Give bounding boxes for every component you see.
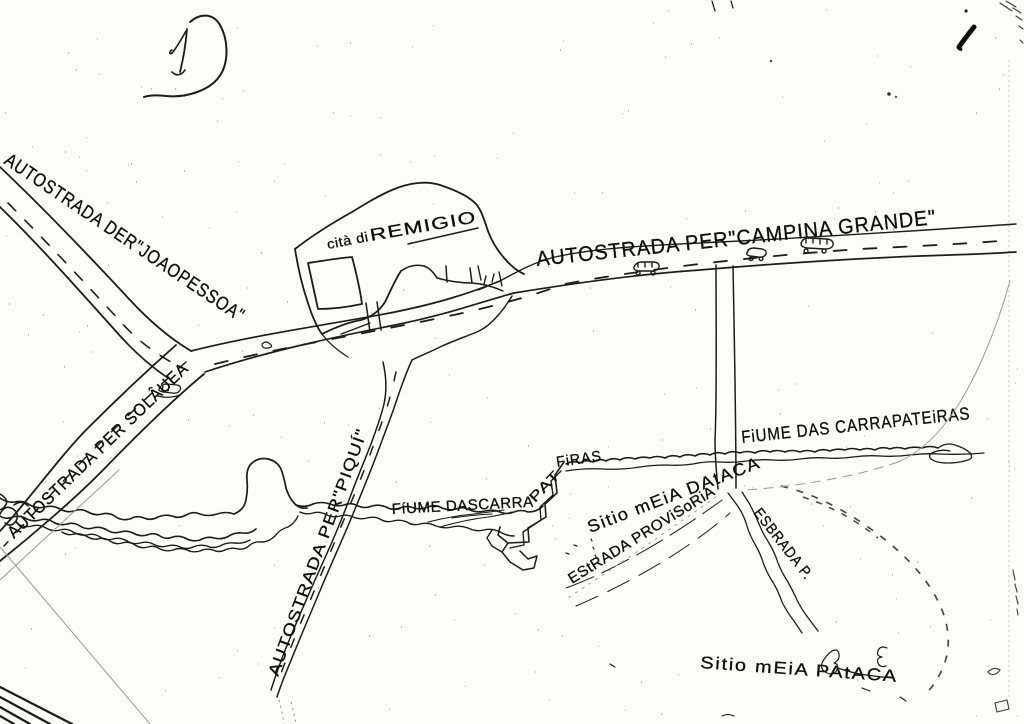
svg-text:PAT: PAT [526,467,564,505]
svg-text:FiUME DAS CARRAPATEiRAS: FiUME DAS CARRAPATEiRAS [740,403,971,447]
svg-text:REMIGIO: REMIGIO [368,207,478,244]
svg-text:cità di: cità di [326,229,370,252]
svg-text:ESBRADA P.: ESBRADA P. [750,505,816,583]
svg-text:Sitio mEiA PAtACA: Sitio mEiA PAtACA [700,653,899,686]
svg-text:AUTOSTRADA DER"JOAOPESSOA": AUTOSTRADA DER"JOAOPESSOA" [0,150,248,327]
svg-text:AUTOSTRADA PER"CAMPINA GRANDE": AUTOSTRADA PER"CAMPINA GRANDE" [535,206,937,271]
svg-text:FiRAS: FiRAS [555,448,603,471]
svg-text:AUTOSTRADA PER"PIQUÍ": AUTOSTRADA PER"PIQUÍ" [264,426,371,679]
svg-text:FíUME DASCARRA: FíUME DASCARRA [391,494,534,518]
